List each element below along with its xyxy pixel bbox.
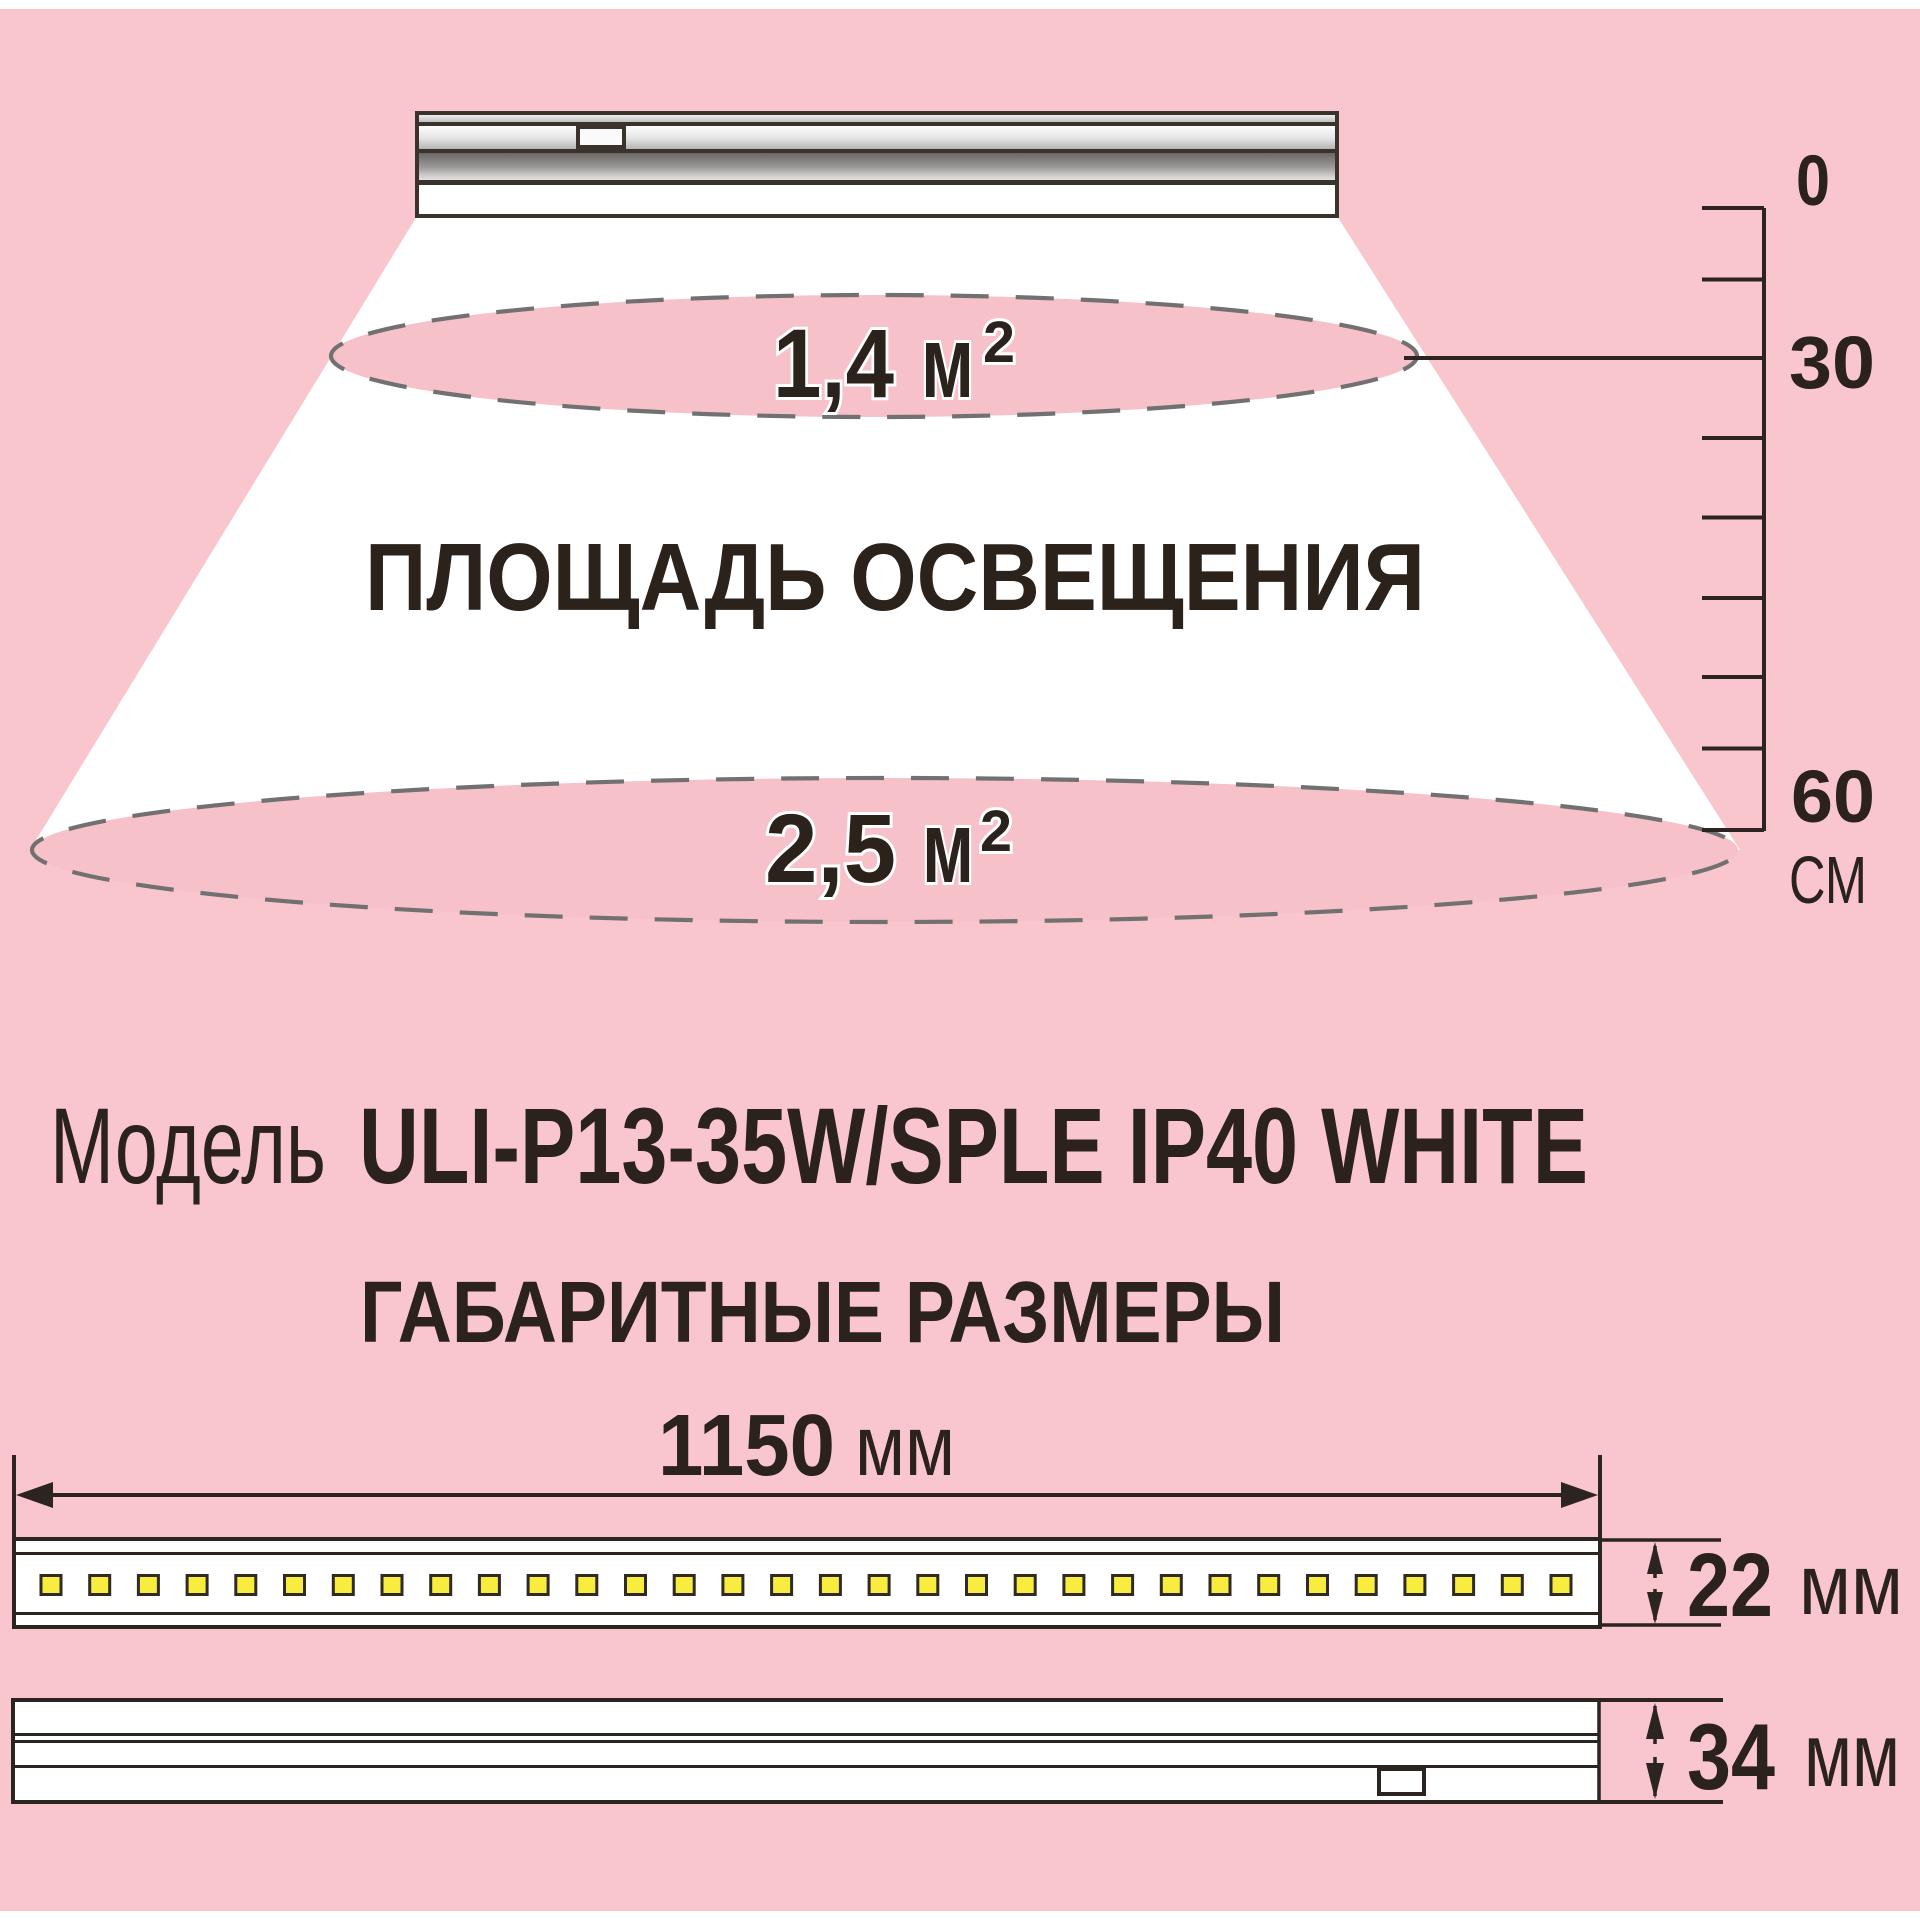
svg-text:мм: мм bbox=[855, 1399, 955, 1494]
svg-text:1150: 1150 bbox=[658, 1397, 835, 1494]
svg-text:м: м bbox=[921, 305, 974, 419]
svg-text:30: 30 bbox=[1789, 321, 1875, 404]
svg-text:1,4: 1,4 bbox=[773, 309, 894, 418]
svg-text:ПЛОЩАДЬ ОСВЕЩЕНИЯ: ПЛОЩАДЬ ОСВЕЩЕНИЯ bbox=[365, 524, 1425, 631]
svg-text:2,5: 2,5 bbox=[765, 794, 896, 903]
svg-text:СМ: СМ bbox=[1789, 843, 1867, 918]
svg-text:мм: мм bbox=[1804, 1706, 1900, 1806]
svg-text:2: 2 bbox=[980, 799, 1012, 864]
svg-text:34: 34 bbox=[1687, 1704, 1775, 1809]
svg-text:ГАБАРИТНЫЕ РАЗМЕРЫ: ГАБАРИТНЫЕ РАЗМЕРЫ bbox=[360, 1264, 1285, 1361]
svg-text:ULI-P13-35W/SPLE IP40 WHITE: ULI-P13-35W/SPLE IP40 WHITE bbox=[359, 1085, 1588, 1206]
svg-text:Модель: Модель bbox=[50, 1085, 326, 1206]
svg-text:м: м bbox=[922, 790, 974, 904]
svg-text:60: 60 bbox=[1791, 755, 1875, 838]
svg-text:0: 0 bbox=[1796, 142, 1830, 221]
svg-text:2: 2 bbox=[983, 310, 1015, 375]
svg-text:мм: мм bbox=[1799, 1538, 1903, 1633]
svg-text:22: 22 bbox=[1687, 1536, 1773, 1636]
